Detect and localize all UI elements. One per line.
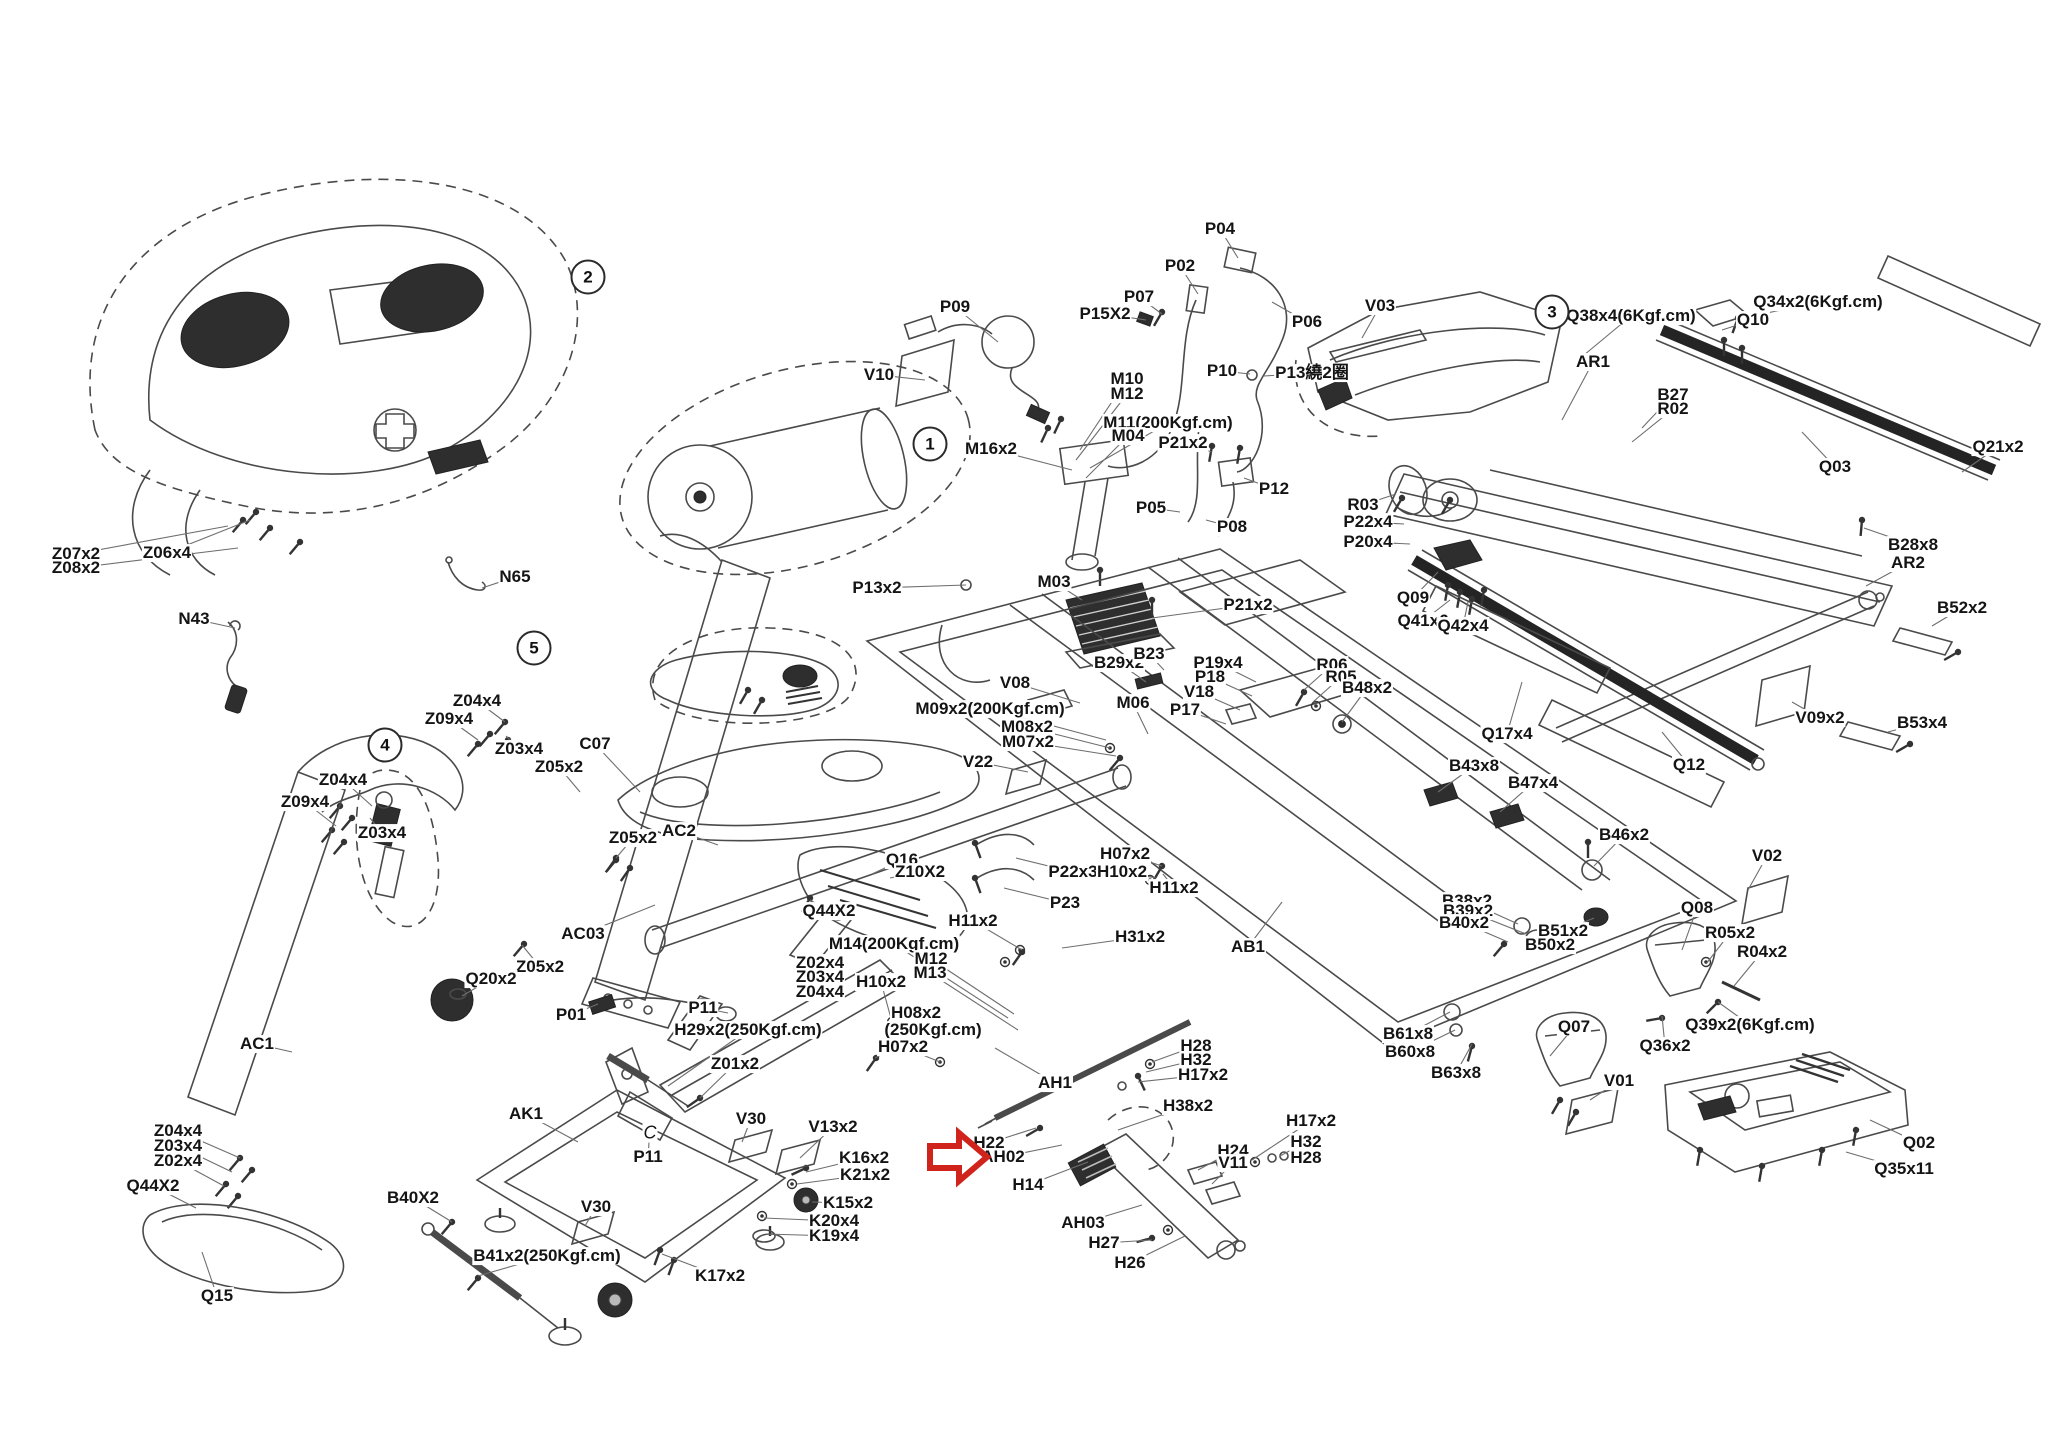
part-label-q15: Q15 <box>200 1287 234 1305</box>
part-label-h27: H27 <box>1087 1234 1120 1252</box>
part-label-p20x4: P20x4 <box>1342 533 1393 551</box>
part-label-p23: P23 <box>1049 894 1081 912</box>
part-label-k15x2: K15x2 <box>822 1194 874 1212</box>
part-label-q42x4: Q42x4 <box>1436 617 1489 635</box>
part-label-z03x4: Z03x4 <box>357 824 407 842</box>
part-label-b40x2: B40X2 <box>386 1189 440 1207</box>
part-label-z03x4: Z03x4 <box>494 740 544 758</box>
part-label-p11: P11 <box>632 1148 663 1166</box>
part-label-h26: H26 <box>1113 1254 1146 1272</box>
part-label-ak1: AK1 <box>508 1105 544 1123</box>
part-label-q44x2: Q44X2 <box>126 1177 181 1195</box>
part-label-b63x8: B63x8 <box>1430 1064 1482 1082</box>
part-label-p12: P12 <box>1258 480 1290 498</box>
part-label-h11x2: H11x2 <box>947 912 998 930</box>
part-label-ah03: AH03 <box>1060 1214 1105 1232</box>
part-label-p09: P09 <box>939 298 971 316</box>
part-label-ab1: AB1 <box>1230 938 1266 956</box>
part-label-v22: V22 <box>962 753 994 771</box>
part-label-p15x2: P15X2 <box>1078 305 1131 323</box>
part-label-k21x2: K21x2 <box>839 1166 891 1184</box>
part-label-b61x8: B61x8 <box>1382 1025 1434 1043</box>
part-label-m04: M04 <box>1110 427 1145 445</box>
part-label-m07x2: M07x2 <box>1001 733 1055 751</box>
exploded-diagram-canvas: Z07x2Z08x2Z06x4N43N65Z04x4Z09x4Z03x4C07Z… <box>0 0 2048 1448</box>
part-label-q08: Q08 <box>1680 899 1714 917</box>
part-label-z09x4: Z09x4 <box>424 710 474 728</box>
part-label-h38x2: H38x2 <box>1162 1097 1214 1115</box>
part-label-q39x2-6kgf-cm-: Q39x2(6Kgf.cm) <box>1684 1016 1815 1034</box>
part-label-v08: V08 <box>999 674 1031 692</box>
labels-layer: Z07x2Z08x2Z06x4N43N65Z04x4Z09x4Z03x4C07Z… <box>0 0 2048 1448</box>
part-label-m06: M06 <box>1115 694 1150 712</box>
part-label-r05x2: R05x2 <box>1704 924 1756 942</box>
part-label-p06: P06 <box>1291 313 1323 331</box>
part-label-v13x2: V13x2 <box>807 1118 858 1136</box>
part-label-z10x2: Z10X2 <box>894 863 946 881</box>
part-label-h10x2: H10x2 <box>1096 863 1148 881</box>
part-label-p13-2-: P13繞2圈 <box>1274 364 1350 382</box>
part-label-h14: H14 <box>1011 1176 1044 1194</box>
part-label-z01x2: Z01x2 <box>710 1055 760 1073</box>
part-label-ah02: AH02 <box>980 1148 1025 1166</box>
part-label-r02: R02 <box>1656 400 1689 418</box>
part-label-v30: V30 <box>580 1198 612 1216</box>
part-label-m09x2-200kgf-cm-: M09x2(200Kgf.cm) <box>914 700 1065 718</box>
part-label-v03: V03 <box>1364 297 1396 315</box>
part-label-v01: V01 <box>1603 1072 1635 1090</box>
part-label-m12: M12 <box>1109 385 1144 403</box>
part-label-b52x2: B52x2 <box>1936 599 1988 617</box>
part-label-z04x4: Z04x4 <box>318 771 368 789</box>
part-label-ar1: AR1 <box>1575 353 1611 371</box>
part-label-b23: B23 <box>1132 645 1165 663</box>
part-label-q12: Q12 <box>1672 756 1706 774</box>
callout-circle-4: 4 <box>368 728 403 763</box>
part-label-c07: C07 <box>578 735 611 753</box>
part-label-z05x2: Z05x2 <box>515 958 565 976</box>
part-label-p02: P02 <box>1164 257 1196 275</box>
part-label-b47x4: B47x4 <box>1507 774 1559 792</box>
part-label-q38x4-6kgf-cm-: Q38x4(6Kgf.cm) <box>1565 307 1696 325</box>
part-label-m13: M13 <box>912 964 947 982</box>
part-label-p04: P04 <box>1204 220 1236 238</box>
part-label-h10x2: H10x2 <box>855 973 907 991</box>
part-label-q07: Q07 <box>1557 1018 1591 1036</box>
part-label-v02: V02 <box>1751 847 1783 865</box>
part-label-h07x2: H07x2 <box>1099 845 1151 863</box>
part-label-q34x2-6kgf-cm-: Q34x2(6Kgf.cm) <box>1752 293 1883 311</box>
part-label-q02: Q02 <box>1902 1134 1936 1152</box>
part-label-p01: P01 <box>555 1006 587 1024</box>
part-label-h17x2: H17x2 <box>1285 1112 1337 1130</box>
part-label-q20x2: Q20x2 <box>464 970 517 988</box>
part-label-r04x2: R04x2 <box>1736 943 1788 961</box>
part-label-v11: V11 <box>1217 1154 1248 1172</box>
part-label-p22x3: P22x3 <box>1047 863 1098 881</box>
part-label-m03: M03 <box>1036 573 1071 591</box>
callout-circle-3: 3 <box>1535 295 1570 330</box>
callout-circle-1: 1 <box>913 427 948 462</box>
part-label-n43: N43 <box>177 610 210 628</box>
part-label-h11x2: H11x2 <box>1148 879 1199 897</box>
part-label-p08: P08 <box>1216 518 1248 536</box>
part-label-b60x8: B60x8 <box>1384 1043 1436 1061</box>
part-label-h07x2: H07x2 <box>877 1038 929 1056</box>
part-label-n65: N65 <box>498 568 531 586</box>
part-label-q10: Q10 <box>1736 311 1770 329</box>
part-label-m16x2: M16x2 <box>964 440 1018 458</box>
part-label-z04x4: Z04x4 <box>795 983 845 1001</box>
part-label-q36x2: Q36x2 <box>1638 1037 1691 1055</box>
part-label-ac1: AC1 <box>239 1035 275 1053</box>
part-label-p22x4: P22x4 <box>1342 513 1393 531</box>
part-label-p05: P05 <box>1135 499 1167 517</box>
part-label-b53x4: B53x4 <box>1896 714 1948 732</box>
part-label-v18: V18 <box>1183 683 1215 701</box>
part-label-ar2: AR2 <box>1890 554 1926 572</box>
part-label-b46x2: B46x2 <box>1598 826 1650 844</box>
part-label-h29x2-250kgf-cm-: H29x2(250Kgf.cm) <box>673 1021 822 1039</box>
part-label-b28x8: B28x8 <box>1887 536 1939 554</box>
part-label-q17x4: Q17x4 <box>1480 725 1533 743</box>
part-label-q44x2: Q44X2 <box>802 902 857 920</box>
part-label-h17x2: H17x2 <box>1177 1066 1229 1084</box>
part-label-k17x2: K17x2 <box>694 1267 746 1285</box>
part-label-q09: Q09 <box>1396 589 1430 607</box>
part-label-ac03: AC03 <box>560 925 605 943</box>
part-label-p17: P17 <box>1169 701 1201 719</box>
part-label-q35x11: Q35x11 <box>1873 1160 1935 1178</box>
part-label-b48x2: B48x2 <box>1341 679 1393 697</box>
part-label-p10: P10 <box>1206 362 1238 380</box>
part-label-ah1: AH1 <box>1037 1074 1073 1092</box>
part-label-b50x2: B50x2 <box>1524 936 1576 954</box>
part-label-z09x4: Z09x4 <box>280 793 330 811</box>
part-label-ac2: AC2 <box>661 822 697 840</box>
part-label-z05x2: Z05x2 <box>608 829 658 847</box>
part-label-q21x2: Q21x2 <box>1971 438 2024 456</box>
part-label-z06x4: Z06x4 <box>142 544 192 562</box>
part-label-v10: V10 <box>863 366 895 384</box>
part-label-z05x2: Z05x2 <box>534 758 584 776</box>
part-label-b41x2-250kgf-cm-: B41x2(250Kgf.cm) <box>472 1247 621 1265</box>
part-label-z08x2: Z08x2 <box>51 559 101 577</box>
callout-circle-5: 5 <box>517 631 552 666</box>
part-label-b40x2: B40x2 <box>1438 914 1490 932</box>
part-label-z02x4: Z02x4 <box>153 1152 203 1170</box>
part-label-z04x4: Z04x4 <box>452 692 502 710</box>
part-label-c: C <box>643 1124 658 1143</box>
part-label-h28: H28 <box>1289 1149 1322 1167</box>
callout-circle-2: 2 <box>571 260 606 295</box>
part-label-q03: Q03 <box>1818 458 1852 476</box>
part-label-h31x2: H31x2 <box>1114 928 1166 946</box>
part-label-p21x2: P21x2 <box>1222 596 1273 614</box>
part-label-v30: V30 <box>735 1110 767 1128</box>
part-label-p11: P11 <box>687 999 718 1017</box>
part-label-v09x2: V09x2 <box>1794 709 1845 727</box>
part-label-p13x2: P13x2 <box>851 579 902 597</box>
part-label-b43x8: B43x8 <box>1448 757 1500 775</box>
part-label-p21x2: P21x2 <box>1157 434 1208 452</box>
part-label-k19x4: K19x4 <box>808 1227 860 1245</box>
